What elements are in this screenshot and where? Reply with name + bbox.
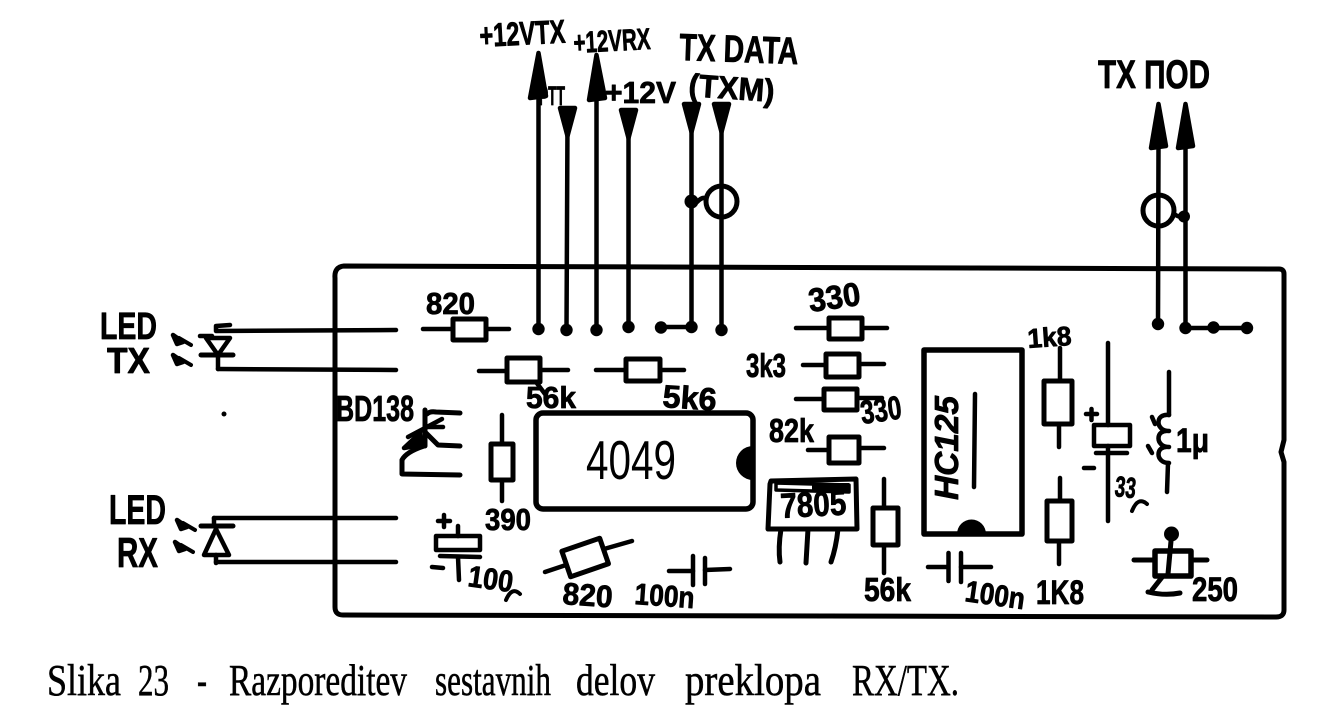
svg-text:82k: 82k — [769, 412, 815, 449]
svg-text:RX: RX — [117, 529, 158, 576]
svg-text:PTT: PTT — [539, 81, 565, 111]
svg-text:100n: 100n — [634, 578, 696, 615]
svg-text:+12VTX: +12VTX — [478, 13, 566, 54]
svg-text:820: 820 — [426, 286, 475, 321]
svg-text:56k: 56k — [864, 571, 912, 608]
svg-text:TX DATA: TX DATA — [679, 27, 799, 73]
svg-text:3k3: 3k3 — [746, 347, 786, 384]
svg-text:BD138: BD138 — [336, 388, 414, 429]
svg-text:1μ: 1μ — [1176, 422, 1209, 460]
svg-text:7805: 7805 — [779, 484, 847, 526]
svg-text:390: 390 — [485, 502, 531, 537]
svg-text:Slika23-Razporeditevsestavnihd: Slika23-Razporeditevsestavnihdelovpreklo… — [47, 656, 959, 705]
svg-text:(TXM): (TXM) — [688, 67, 776, 109]
svg-text:+12VRX: +12VRX — [573, 23, 652, 60]
svg-text:820: 820 — [562, 576, 614, 614]
svg-text:56k: 56k — [526, 380, 577, 415]
svg-text:33: 33 — [1113, 471, 1137, 505]
svg-text:HC125: HC125 — [928, 395, 965, 500]
svg-text:1k8: 1k8 — [1026, 321, 1072, 354]
svg-text:1K8: 1K8 — [1036, 574, 1084, 612]
svg-text:TX: TX — [107, 340, 150, 381]
svg-text:TX ΠOD: TX ΠOD — [1098, 53, 1210, 97]
svg-text:250: 250 — [1192, 571, 1238, 609]
svg-text:4049: 4049 — [586, 429, 676, 491]
svg-text:330: 330 — [858, 389, 904, 431]
svg-text:330: 330 — [806, 275, 863, 319]
svg-text:LED: LED — [109, 486, 166, 533]
svg-text:100n: 100n — [963, 575, 1027, 616]
svg-text:+12V: +12V — [605, 75, 676, 110]
